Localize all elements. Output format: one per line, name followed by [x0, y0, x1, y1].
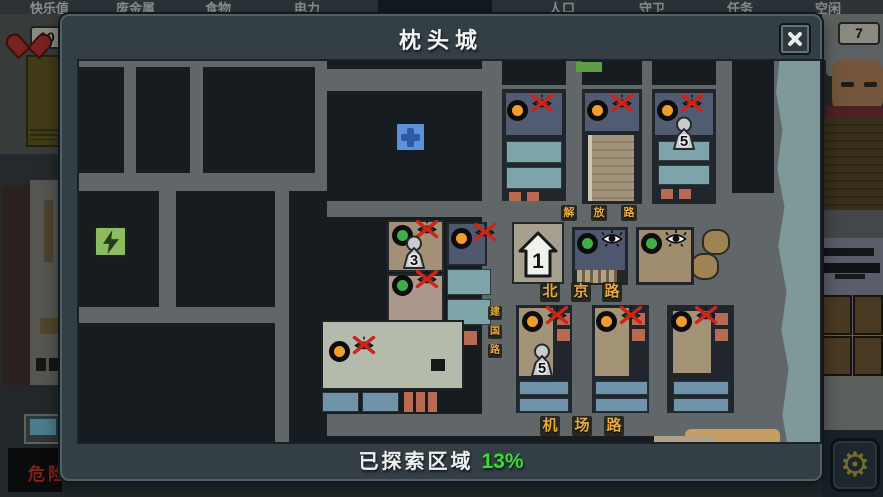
resource-label: 快乐值	[30, 0, 69, 14]
bg-floor	[822, 376, 883, 430]
rifle-icon	[822, 248, 874, 256]
survivor-eye-right	[864, 82, 877, 87]
pawn-marker[interactable]: 5	[671, 116, 697, 151]
rock-mound	[702, 229, 730, 255]
explored-percent: 13%	[481, 450, 523, 473]
building-detail	[661, 189, 673, 199]
building-detail	[595, 398, 648, 412]
bg-wall-strip	[822, 210, 883, 238]
dot-green-marker[interactable]	[577, 233, 598, 254]
resource-label: 守卫	[639, 0, 665, 14]
factory-yard	[428, 392, 437, 412]
unexplored-block	[136, 67, 190, 173]
jiefang-road-label: 路	[621, 205, 637, 221]
unexplored-block	[652, 61, 716, 85]
hospital-cross-icon[interactable]	[395, 122, 426, 152]
eye-open-marker[interactable]	[600, 229, 624, 253]
svg-text:3: 3	[410, 252, 418, 269]
river	[772, 61, 822, 444]
eye-crossed-marker[interactable]	[472, 221, 498, 248]
building-detail	[527, 192, 539, 201]
eye-crossed-marker[interactable]	[693, 304, 719, 331]
settings-gear-button[interactable]: ⚙	[830, 438, 880, 492]
top-bar-notch	[378, 0, 492, 14]
danger-banner: 危险	[8, 448, 62, 492]
dot-orange-marker[interactable]	[522, 311, 543, 332]
building-detail	[506, 141, 562, 163]
jianguo-road-label: 路	[488, 344, 502, 358]
resource-label: 人口	[549, 0, 575, 14]
unexplored-block	[732, 61, 774, 193]
dot-orange-marker[interactable]	[596, 311, 617, 332]
rifle-icon-2	[822, 263, 880, 273]
city-map: 解放路北京路机场路建国路1535	[77, 59, 822, 444]
city-name-title: 枕头城	[62, 23, 820, 55]
eye-crossed-marker[interactable]	[609, 92, 635, 119]
factory-yard	[322, 392, 359, 412]
bg-furniture-2	[40, 318, 60, 334]
heart-icon	[14, 24, 40, 48]
unexplored-block	[176, 191, 275, 307]
game-screen: 快乐值废金属食物电力人口守卫任务空闲 危险 10 ⚙ 7 枕头城	[0, 0, 883, 497]
explored-footer: 已探索区域13%	[62, 445, 820, 481]
svg-text:5: 5	[538, 360, 546, 377]
rock-mound	[691, 253, 719, 280]
dot-green-marker[interactable]	[392, 275, 413, 296]
unexplored-block	[79, 323, 275, 444]
resource-label: 电力	[294, 0, 320, 14]
crate	[853, 336, 883, 376]
beijing-road-label: 路	[602, 282, 622, 302]
field-detail	[464, 331, 477, 345]
jichang-road-label: 路	[604, 416, 624, 436]
building-detail	[673, 381, 729, 395]
resource-label: 任务	[727, 0, 753, 14]
jianguo-road-label: 国	[488, 325, 502, 339]
unexplored-block	[502, 61, 566, 85]
pawn-marker[interactable]: 5	[529, 343, 555, 378]
eye-open-marker[interactable]	[664, 229, 688, 253]
grass-patch	[576, 62, 602, 72]
survivor-eye-left	[841, 82, 854, 87]
jiefang-road-label: 解	[561, 205, 577, 221]
building-stairs	[588, 135, 634, 201]
factory-yard	[404, 392, 413, 412]
field-detail	[447, 269, 491, 295]
bg-furniture	[44, 200, 53, 262]
svg-text:1: 1	[532, 250, 544, 273]
resource-label: 空闲	[815, 0, 841, 14]
survivor-shirt	[826, 106, 883, 118]
south-building	[654, 436, 716, 444]
eye-crossed-marker[interactable]	[414, 268, 440, 295]
unexplored-block	[79, 67, 124, 173]
crate	[822, 336, 852, 376]
dot-orange-marker[interactable]	[329, 341, 350, 362]
city-map-dialog: 枕头城	[60, 14, 822, 481]
jichang-road-label: 场	[572, 416, 592, 436]
svg-text:5: 5	[680, 133, 688, 150]
building-detail	[519, 398, 569, 412]
jichang-road-label: 机	[540, 416, 560, 436]
crate	[822, 295, 852, 335]
factory-yard	[416, 392, 425, 412]
dot-orange-marker[interactable]	[587, 100, 608, 121]
power-bolt-icon[interactable]	[94, 226, 127, 257]
unexplored-block	[203, 67, 315, 173]
bg-furniture-3	[36, 358, 46, 371]
dot-orange-marker[interactable]	[451, 228, 472, 249]
building-detail	[658, 165, 710, 185]
building-detail	[506, 167, 562, 189]
eye-crossed-marker[interactable]	[544, 304, 570, 331]
resource-label: 废金属	[116, 0, 155, 14]
beijing-road-label: 京	[571, 282, 591, 302]
eye-crossed-marker[interactable]	[679, 92, 705, 119]
jiefang-road-label: 放	[591, 205, 607, 221]
bg-wood-panel	[822, 118, 883, 210]
pawn-marker[interactable]: 3	[401, 235, 427, 270]
building-detail	[509, 192, 521, 201]
eye-crossed-marker[interactable]	[529, 92, 555, 119]
factory-detail	[431, 359, 445, 371]
dot-orange-marker[interactable]	[671, 311, 692, 332]
eye-crossed-marker[interactable]	[351, 334, 377, 361]
building-detail	[679, 189, 691, 199]
rifle-icon-3	[835, 274, 865, 279]
jianguo-road-label: 建	[488, 306, 502, 320]
dot-green-marker[interactable]	[641, 233, 662, 254]
bg-brick-wall	[2, 185, 30, 385]
house-marker[interactable]: 1	[518, 231, 558, 278]
idle-counter: 7	[838, 22, 880, 45]
building-detail	[519, 381, 569, 395]
eye-crossed-marker[interactable]	[618, 304, 644, 331]
explored-label: 已探索区域	[358, 451, 473, 473]
building-detail	[673, 398, 729, 412]
beijing-road-label: 北	[540, 282, 560, 302]
danger-label: 危险	[28, 460, 62, 485]
dot-orange-marker[interactable]	[507, 100, 528, 121]
bg-cyan-button[interactable]	[29, 418, 57, 436]
bg-locker-vents	[30, 126, 58, 140]
bg-furniture-4	[49, 358, 59, 371]
unexplored-block	[327, 61, 482, 69]
building-detail	[595, 381, 648, 395]
factory-yard	[362, 392, 399, 412]
crate	[853, 295, 883, 335]
close-icon[interactable]	[779, 23, 811, 55]
resource-label: 食物	[205, 0, 231, 14]
